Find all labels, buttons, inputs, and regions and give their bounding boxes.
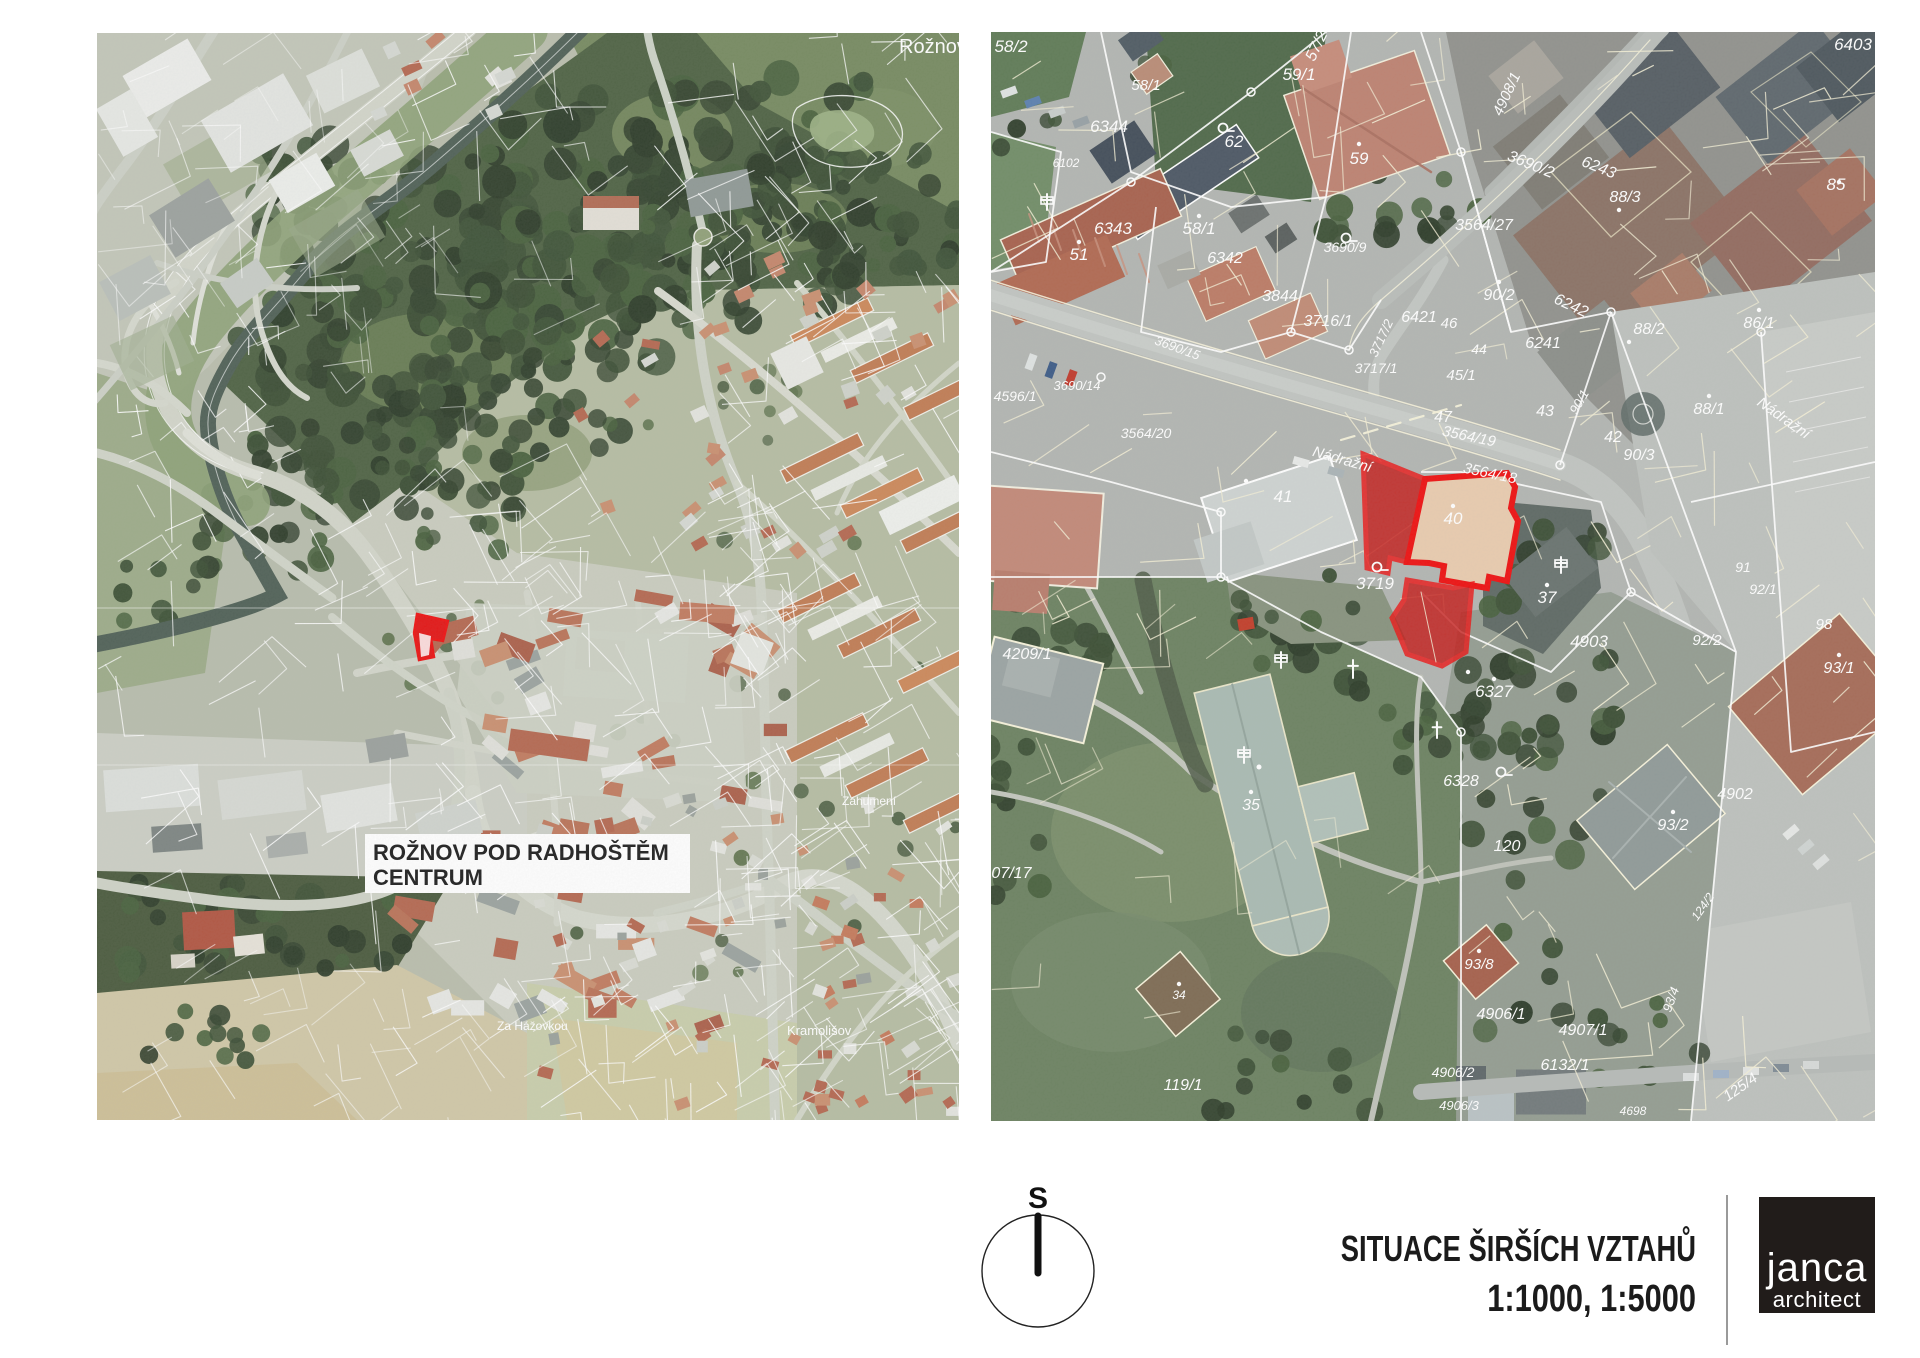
svg-text:S: S — [1028, 1182, 1048, 1215]
